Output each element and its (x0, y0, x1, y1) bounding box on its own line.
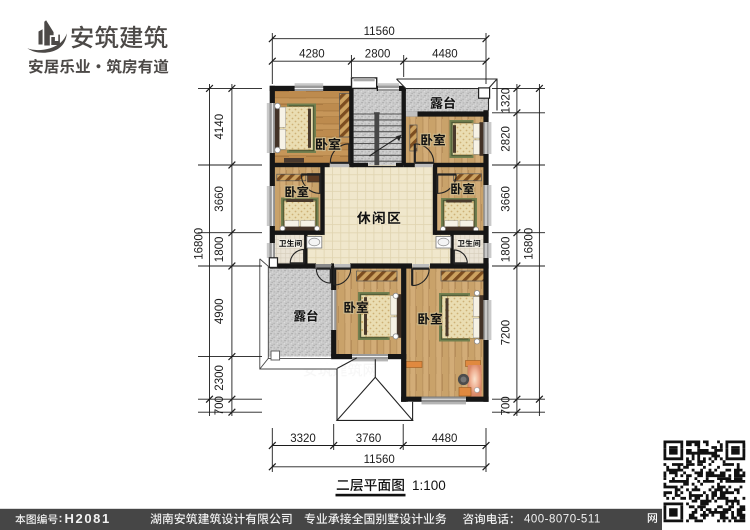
svg-text:11560: 11560 (364, 454, 395, 466)
svg-text:3660: 3660 (501, 186, 513, 212)
svg-text:H2081: H2081 (65, 511, 111, 526)
svg-text:3660: 3660 (214, 186, 226, 212)
svg-text:700: 700 (501, 396, 513, 415)
svg-text:16800: 16800 (524, 228, 536, 260)
svg-text:2820: 2820 (501, 126, 513, 152)
svg-text:1320: 1320 (501, 88, 513, 114)
svg-text:400-8070-511: 400-8070-511 (524, 514, 601, 526)
svg-text:1:100: 1:100 (412, 478, 446, 493)
svg-text:4480: 4480 (432, 433, 458, 445)
svg-text:1800: 1800 (214, 237, 226, 263)
svg-text:2800: 2800 (365, 49, 391, 61)
svg-text:4480: 4480 (432, 49, 458, 61)
svg-text:2300: 2300 (214, 365, 226, 391)
svg-text:7200: 7200 (501, 320, 513, 346)
svg-text::: : (59, 511, 63, 525)
svg-text:11560: 11560 (364, 26, 395, 38)
svg-text:4140: 4140 (214, 114, 226, 140)
svg-text:4280: 4280 (299, 49, 325, 61)
svg-text:700: 700 (214, 396, 226, 415)
svg-text:3760: 3760 (356, 433, 382, 445)
svg-text:16800: 16800 (194, 228, 206, 260)
svg-text:4900: 4900 (214, 299, 226, 325)
svg-text:3320: 3320 (290, 433, 316, 445)
svg-text:1800: 1800 (501, 237, 513, 263)
